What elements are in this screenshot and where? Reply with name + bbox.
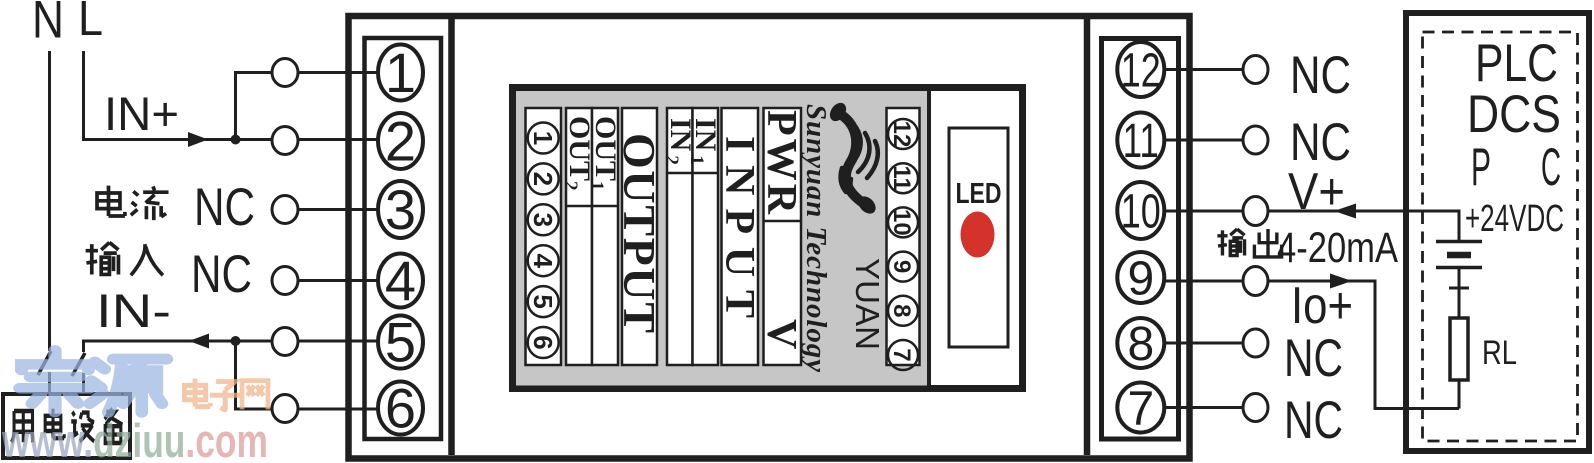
svg-text:11: 11 — [1123, 115, 1159, 168]
svg-text:2: 2 — [528, 172, 558, 186]
svg-text:6: 6 — [385, 377, 416, 440]
svg-text:NC: NC — [191, 245, 252, 304]
svg-text:4: 4 — [385, 249, 416, 312]
svg-text:1: 1 — [385, 41, 416, 104]
svg-text:NC: NC — [1290, 46, 1351, 105]
svg-text:V+: V+ — [1288, 163, 1345, 221]
svg-text:12: 12 — [888, 121, 915, 148]
svg-text:C: C — [1541, 138, 1561, 197]
svg-text:9: 9 — [888, 260, 915, 273]
svg-text:RL: RL — [1482, 334, 1517, 372]
svg-text:10: 10 — [888, 209, 915, 236]
svg-text:NC: NC — [1284, 391, 1343, 450]
svg-text:NC: NC — [194, 178, 255, 237]
svg-text:L: L — [78, 0, 103, 46]
svg-text:NC: NC — [1284, 329, 1343, 388]
svg-text:P: P — [1471, 138, 1491, 197]
svg-text:3: 3 — [385, 178, 416, 241]
svg-text:Io+: Io+ — [1291, 277, 1353, 335]
svg-text:1: 1 — [528, 131, 558, 145]
svg-text:+24VDC: +24VDC — [1465, 198, 1564, 240]
svg-text:12: 12 — [1121, 45, 1161, 98]
svg-text:10: 10 — [1121, 186, 1161, 239]
svg-text:4-20mA: 4-20mA — [1277, 224, 1398, 272]
svg-text:7: 7 — [1127, 383, 1154, 436]
svg-text:5: 5 — [385, 311, 416, 374]
svg-text:www.dziuu.com: www.dziuu.com — [1, 414, 268, 463]
svg-text:4: 4 — [528, 253, 558, 268]
svg-text:3: 3 — [528, 213, 558, 227]
svg-text:OUTPUT: OUTPUT — [614, 133, 665, 333]
svg-text:7: 7 — [888, 348, 915, 361]
svg-text:9: 9 — [1127, 253, 1154, 306]
svg-text:8: 8 — [1127, 318, 1154, 371]
svg-text:5: 5 — [528, 294, 558, 308]
svg-text:LED: LED — [956, 178, 1002, 210]
svg-text:Sunyuan Technology: Sunyuan Technology — [800, 104, 832, 372]
svg-text:V: V — [758, 319, 804, 349]
svg-text:DCS: DCS — [1467, 85, 1561, 144]
svg-text:PWR: PWR — [758, 110, 804, 215]
svg-text:IN+: IN+ — [104, 87, 179, 140]
svg-text:YUAN: YUAN — [849, 258, 886, 350]
svg-text:6: 6 — [528, 335, 558, 349]
svg-text:11: 11 — [888, 166, 915, 191]
svg-text:8: 8 — [888, 304, 915, 317]
svg-text:2: 2 — [385, 110, 416, 173]
svg-text:IN-: IN- — [96, 284, 171, 337]
svg-text:N: N — [32, 0, 64, 50]
